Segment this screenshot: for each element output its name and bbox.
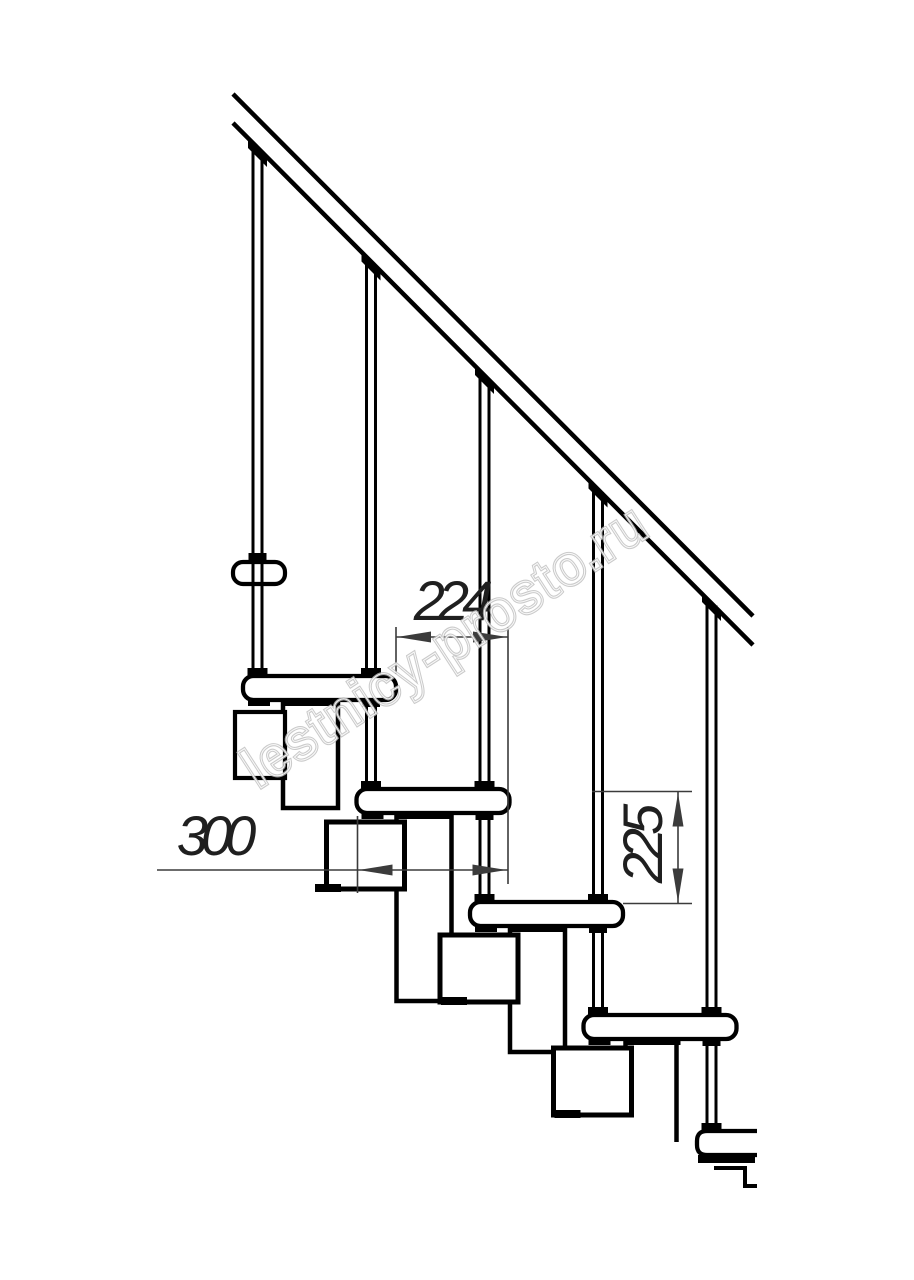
handrail-end-bracket <box>233 562 285 584</box>
tread-2 <box>357 789 510 813</box>
fittings <box>248 137 756 1163</box>
bracket-wedge <box>249 553 267 562</box>
baluster-shoe <box>475 894 495 902</box>
baluster-nut <box>589 926 607 933</box>
baluster-nut <box>476 813 494 820</box>
baluster-5 <box>707 606 716 1132</box>
arrow-down-icon <box>673 869 684 903</box>
arrow-up-icon <box>673 793 684 827</box>
baluster-1 <box>253 152 262 677</box>
tread-3 <box>470 902 623 926</box>
dimension-value-rise: 225 <box>611 803 674 884</box>
baluster-nut <box>703 1039 721 1046</box>
handrail <box>233 94 753 645</box>
baluster-shoe <box>588 1007 608 1015</box>
handrail-top-edge <box>233 94 753 616</box>
baluster-shoe <box>361 781 381 789</box>
spine-collar <box>440 935 518 1002</box>
bottom-cut-module <box>714 1168 757 1188</box>
spine-collar <box>554 1048 632 1115</box>
rail-cap-icon <box>702 591 721 621</box>
collar-step <box>555 1110 581 1118</box>
technical-drawing: 224 300 225 lestnicy-prosto.ru lestnicy-… <box>0 0 914 1280</box>
collar-step <box>315 884 341 892</box>
tread-5-cut <box>697 1131 757 1155</box>
dimension-value-depth: 300 <box>177 804 256 867</box>
collar-step <box>441 997 467 1005</box>
staircase-drawing: 224 300 225 lestnicy-prosto.ru lestnicy-… <box>0 0 914 1280</box>
spine-collar <box>327 822 405 889</box>
tread-4 <box>584 1015 737 1039</box>
baluster-shoe <box>702 1123 722 1131</box>
baluster-shoe <box>475 781 495 789</box>
baluster-shoe <box>702 1007 722 1015</box>
baluster-shoe <box>248 668 268 676</box>
baluster-shoe <box>588 894 608 902</box>
